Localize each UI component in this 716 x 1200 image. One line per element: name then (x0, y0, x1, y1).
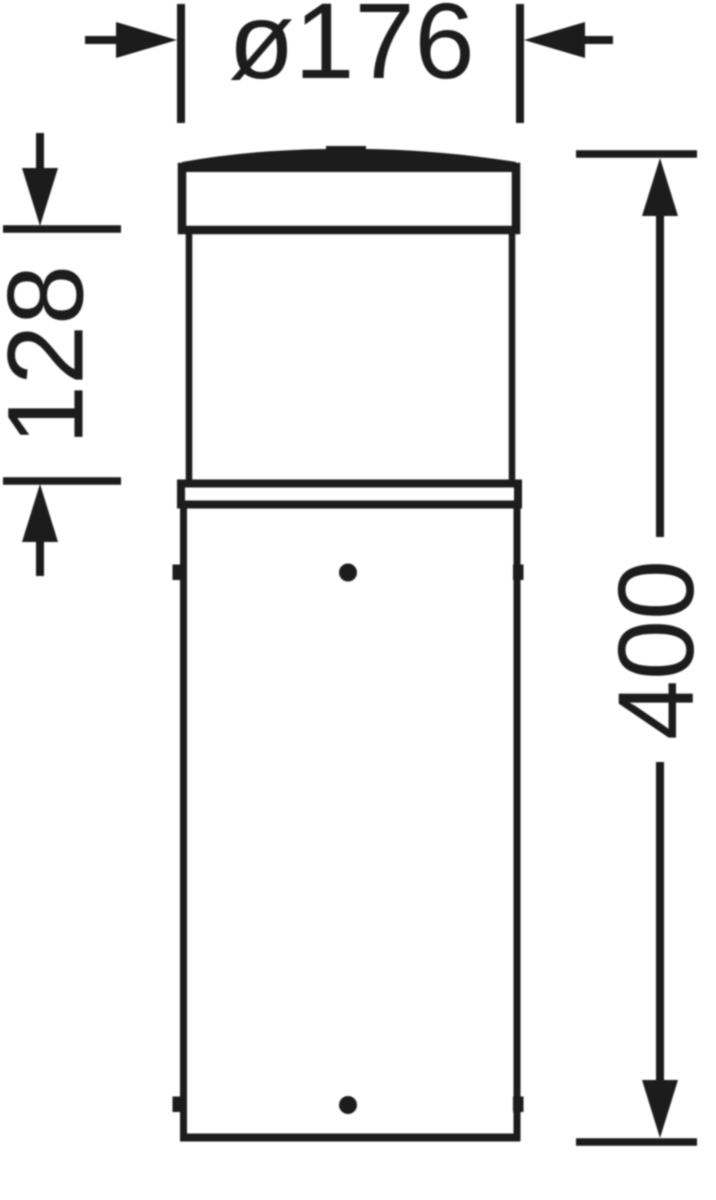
svg-text:ø176: ø176 (228, 0, 474, 101)
svg-text:128: 128 (0, 265, 106, 445)
svg-text:400: 400 (595, 560, 716, 740)
